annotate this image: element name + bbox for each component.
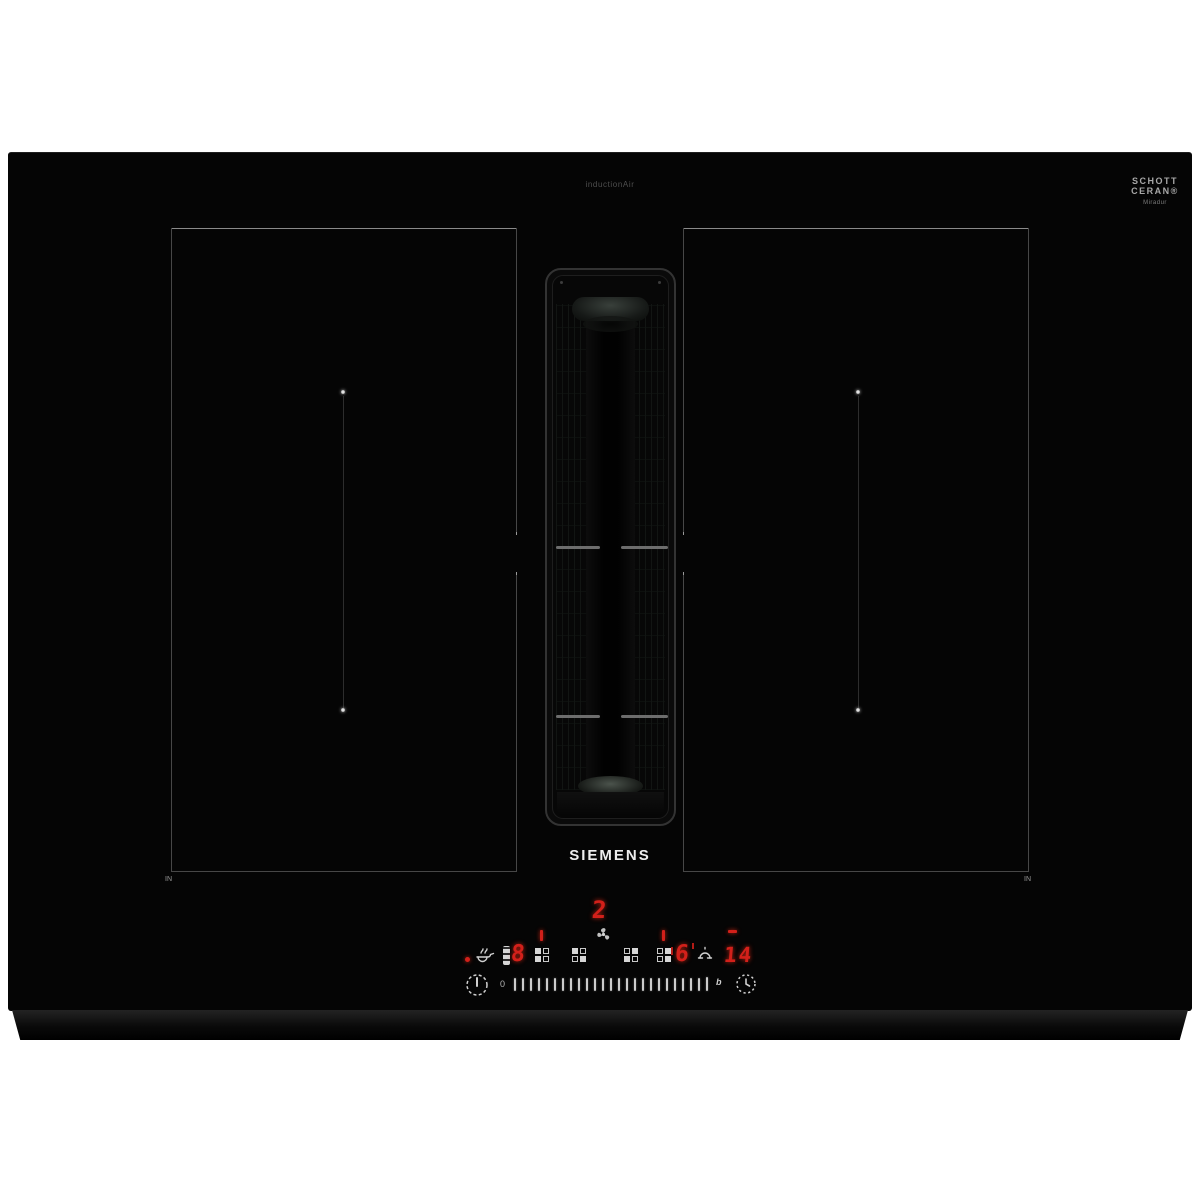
glass-brand-subline: Miradur xyxy=(1120,200,1190,206)
cooking-zone-right xyxy=(683,228,1029,872)
zone-border xyxy=(683,228,684,535)
grille-handle[interactable] xyxy=(556,715,600,718)
grille-handle[interactable] xyxy=(556,546,600,549)
zone-marker-line xyxy=(343,396,344,708)
slider-tick[interactable] xyxy=(618,978,620,991)
zone-marker-dot xyxy=(341,390,345,394)
zone-select-key-rear-right[interactable] xyxy=(624,948,639,963)
glass-brand-line2: CERAN® xyxy=(1120,186,1190,196)
move-mode-mark xyxy=(692,943,694,949)
siemens-logo: SIEMENS xyxy=(545,847,675,864)
zone-border xyxy=(1028,228,1029,872)
hob-front-edge xyxy=(12,1010,1188,1040)
zone-border xyxy=(683,871,1029,872)
slider-tick[interactable] xyxy=(642,978,644,991)
slider-tick[interactable] xyxy=(562,978,564,991)
zone-select-key-front-left[interactable] xyxy=(535,948,550,963)
zone-border xyxy=(516,228,517,535)
slider-tick[interactable] xyxy=(666,978,668,991)
slider-tick[interactable] xyxy=(570,978,572,991)
slider-tick[interactable] xyxy=(690,978,692,991)
zone-select-key-rear-left[interactable] xyxy=(572,948,587,963)
move-mode-mark xyxy=(671,947,673,955)
slider-tick[interactable] xyxy=(554,978,556,991)
screw-dot xyxy=(560,281,563,284)
zone-border xyxy=(171,871,517,872)
zone-corner-label-right: IN xyxy=(1024,876,1031,883)
zone-border xyxy=(683,228,1029,229)
zone-marker-dot xyxy=(856,390,860,394)
slider-tick[interactable] xyxy=(578,978,580,991)
slider-tick[interactable] xyxy=(650,978,652,991)
power-button-icon[interactable] xyxy=(464,972,490,998)
right-zone-power-display: 6 xyxy=(674,941,690,967)
zone-marker-dot xyxy=(856,708,860,712)
zone-active-indicator xyxy=(540,930,543,941)
zone-border xyxy=(683,572,684,872)
slider-tick[interactable] xyxy=(634,978,636,991)
fan-icon[interactable] xyxy=(595,927,612,942)
timer-display: 14 xyxy=(723,943,754,967)
residual-heat-dot xyxy=(465,957,470,962)
slider-tick[interactable] xyxy=(706,977,708,991)
zone-border-tip xyxy=(516,572,517,575)
slider-tick[interactable] xyxy=(602,978,604,991)
power-slider[interactable] xyxy=(514,977,708,991)
slider-tick[interactable] xyxy=(522,978,524,991)
extractor-bottom-shelf xyxy=(557,792,664,818)
slider-tick[interactable] xyxy=(530,978,532,991)
slider-tick[interactable] xyxy=(674,978,676,991)
slider-tick[interactable] xyxy=(586,978,588,991)
slider-tick[interactable] xyxy=(626,978,628,991)
model-print-label: inductionAir xyxy=(545,180,675,189)
zone-corner-label-left: IN xyxy=(165,876,172,883)
zone-marker-dot xyxy=(341,708,345,712)
zone-border-tip xyxy=(683,572,684,575)
zone-active-indicator xyxy=(662,930,665,941)
slider-tick[interactable] xyxy=(538,978,540,991)
slider-zero-label: 0 xyxy=(500,979,505,989)
grille-handle[interactable] xyxy=(621,715,668,718)
zone-select-key-front-right[interactable] xyxy=(657,948,672,963)
grille-handle[interactable] xyxy=(621,546,668,549)
slider-tick[interactable] xyxy=(514,978,516,991)
slider-tick[interactable] xyxy=(682,978,684,991)
fan-level-display: 2 xyxy=(591,896,608,924)
slider-tick[interactable] xyxy=(658,978,660,991)
zone-border-tip xyxy=(516,532,517,535)
glass-brand-logo: SCHOTT CERAN® Miradur xyxy=(1120,176,1190,206)
timer-selected-indicator xyxy=(728,930,737,933)
slider-boost-label: b xyxy=(716,977,722,987)
slider-tick[interactable] xyxy=(546,978,548,991)
glass-brand-line1: SCHOTT xyxy=(1120,176,1190,186)
slider-tick[interactable] xyxy=(610,978,612,991)
alarm-bell-icon[interactable] xyxy=(697,946,713,963)
frying-sensor-icon[interactable] xyxy=(474,944,496,964)
zone-marker-line xyxy=(858,396,859,708)
product-photo: inductionAir SCHOTT CERAN® Miradur SIEME… xyxy=(0,0,1200,1200)
zone-border-tip xyxy=(683,532,684,535)
zone-border xyxy=(171,228,517,229)
timer-clock-icon[interactable] xyxy=(734,972,758,996)
power-level-bar-icon[interactable] xyxy=(503,946,510,965)
slider-tick[interactable] xyxy=(698,978,700,991)
left-zone-power-display: 8 xyxy=(510,941,526,967)
cooking-zone-left xyxy=(171,228,517,872)
extractor-top-roller-cap xyxy=(583,316,638,332)
zone-border xyxy=(171,228,172,872)
zone-border xyxy=(516,572,517,872)
slider-tick[interactable] xyxy=(594,978,596,991)
screw-dot xyxy=(658,281,661,284)
